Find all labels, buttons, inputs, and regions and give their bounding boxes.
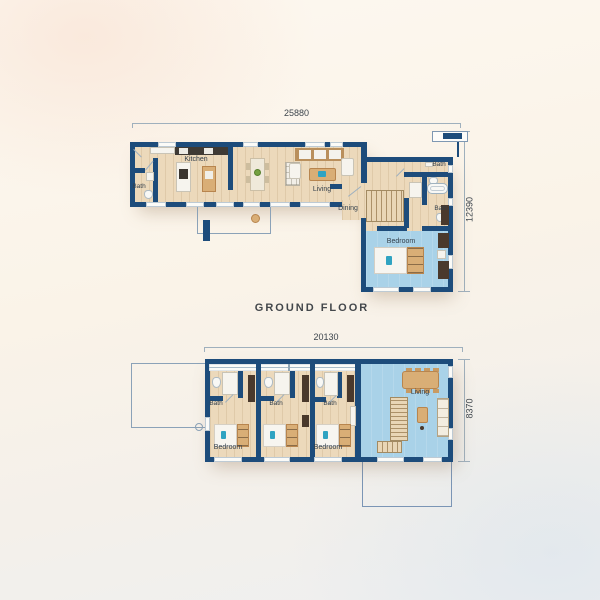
window (205, 417, 210, 431)
window (373, 287, 399, 292)
shower (222, 372, 238, 395)
wall-segment (404, 198, 409, 228)
lounge-chair (417, 407, 428, 423)
upper-dim-top-line (204, 347, 462, 348)
room-label-bath: Bath (119, 184, 159, 191)
wardrobe (438, 233, 449, 248)
appliance (437, 250, 446, 259)
deck-outline (197, 207, 198, 234)
closet (347, 375, 354, 402)
window (423, 457, 442, 462)
wall-segment (130, 142, 135, 207)
wall-segment (361, 142, 367, 183)
bathtub (427, 183, 448, 194)
toilet (212, 377, 221, 388)
chair (265, 163, 269, 170)
wall-cabinet (350, 406, 356, 426)
room-label-living: Living (292, 186, 352, 193)
window (214, 457, 242, 462)
window (243, 202, 260, 207)
dim-tick (458, 359, 470, 360)
window (146, 202, 166, 207)
side-table (420, 426, 424, 430)
bed-pillow (270, 431, 275, 439)
room-label-bedroom: Bedroom (371, 238, 431, 245)
bed-pillow (221, 431, 226, 439)
closet (302, 415, 309, 427)
deck-planter (203, 220, 210, 241)
window (305, 142, 325, 147)
dim-tick (204, 347, 205, 352)
wall-segment (377, 226, 407, 231)
armchair (341, 158, 354, 176)
window (448, 366, 453, 378)
deck-outline (131, 363, 205, 364)
staircase-lower (377, 441, 402, 453)
bed-pillow (323, 431, 328, 439)
closet (302, 375, 309, 402)
terrace-outline (362, 506, 452, 507)
ground-dim-right-label: 12390 (466, 180, 475, 240)
window (186, 202, 204, 207)
wall-segment (361, 218, 366, 292)
wall-segment (422, 226, 448, 231)
deck-outline (131, 363, 132, 428)
window (216, 202, 234, 207)
window (413, 287, 431, 292)
window (330, 142, 343, 147)
room-label-bedroom: Bedroom (198, 444, 258, 451)
wall-segment (290, 371, 295, 398)
kitchen-island-2 (202, 166, 216, 192)
staircase (390, 397, 408, 441)
terrace-outline (451, 458, 452, 507)
shower (324, 372, 338, 396)
wardrobe (438, 261, 449, 279)
upper-dim-right-label: 8370 (466, 379, 475, 439)
room-label-kitchen: Kitchen (166, 156, 226, 163)
deck-marker (195, 423, 203, 431)
dim-tick (458, 291, 470, 292)
shower (274, 372, 290, 395)
bed-foot (407, 247, 424, 274)
dim-tick (132, 123, 133, 128)
kitchen-sink (179, 148, 188, 154)
wall-segment (130, 168, 145, 173)
toilet (316, 377, 324, 388)
room-label-dining: Dining (318, 205, 378, 212)
room-label-bath: Bath (310, 401, 350, 408)
sofa-cushion (314, 150, 326, 159)
floor-plan-canvas: 25880 12390 (0, 0, 600, 600)
bed-foot (286, 424, 298, 447)
island-appliance (179, 169, 188, 179)
dining-table (402, 371, 439, 389)
window (270, 202, 290, 207)
room-label-bath: Bath (196, 401, 236, 408)
table-decor (318, 171, 326, 177)
dim-tick (458, 461, 470, 462)
window (377, 457, 404, 462)
entry-planter (443, 133, 462, 139)
terrace-outline (362, 458, 363, 507)
kitchen-counter (150, 147, 175, 154)
shower (409, 182, 422, 198)
deck-stool (251, 214, 260, 223)
island-sink (205, 171, 213, 179)
room-label-bath: Bath (419, 162, 459, 169)
plant (254, 169, 261, 176)
wall-segment (457, 142, 459, 157)
ground-dim-top-label: 25880 (132, 109, 461, 118)
ground-dim-top-line (132, 123, 461, 124)
wall-segment (238, 371, 243, 398)
room-label-living: Living (390, 389, 450, 396)
chair (265, 176, 269, 183)
ground-floor-title: GROUND FLOOR (212, 302, 412, 314)
deck-outline (270, 207, 271, 234)
window-mullion (288, 364, 290, 371)
bath-sink (146, 172, 154, 181)
wall-segment (422, 177, 427, 205)
kitchen-stove (204, 148, 213, 154)
armchair (289, 163, 301, 179)
room-label-bedroom: Bedroom (298, 444, 358, 451)
window-band (209, 364, 357, 371)
window (243, 142, 258, 147)
toilet (264, 377, 273, 388)
room-label-bath: Bath (421, 206, 461, 213)
toilet (144, 190, 153, 199)
window (264, 457, 290, 462)
wall-segment (228, 147, 233, 190)
bookshelf (437, 398, 449, 437)
dim-tick (460, 123, 461, 128)
sofa-cushion (299, 150, 311, 159)
room-label-bath: Bath (256, 401, 296, 408)
window (314, 457, 342, 462)
sofa-cushion (329, 150, 341, 159)
closet (248, 375, 255, 402)
dim-tick (462, 347, 463, 352)
upper-dim-top-label: 20130 (197, 333, 455, 342)
bed-pillow (386, 256, 392, 265)
